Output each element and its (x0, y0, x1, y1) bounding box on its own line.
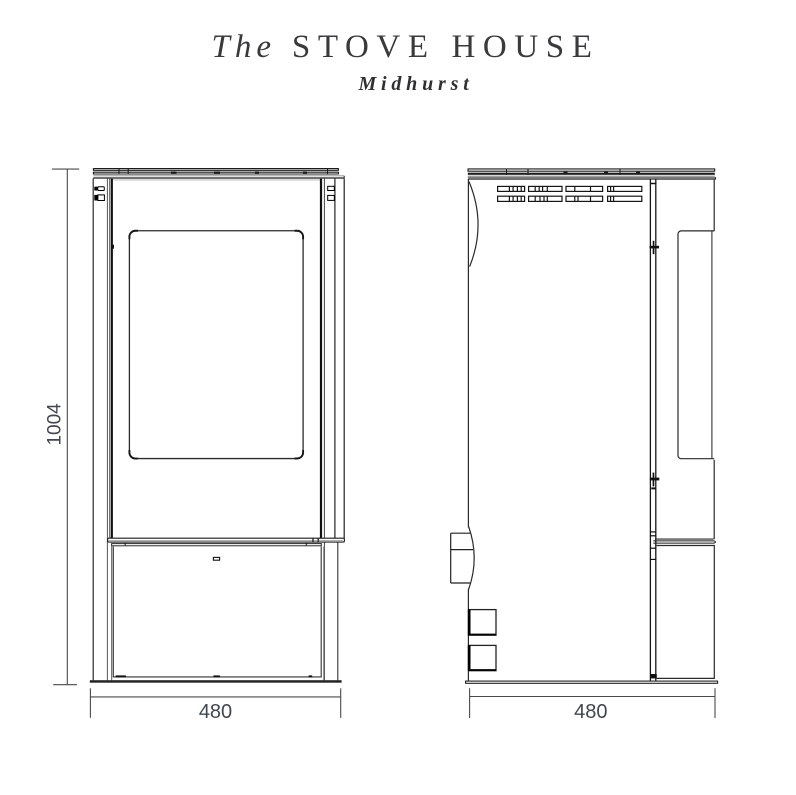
svg-text:480: 480 (199, 701, 232, 723)
svg-text:1004: 1004 (45, 403, 66, 446)
svg-text:480: 480 (574, 701, 607, 723)
